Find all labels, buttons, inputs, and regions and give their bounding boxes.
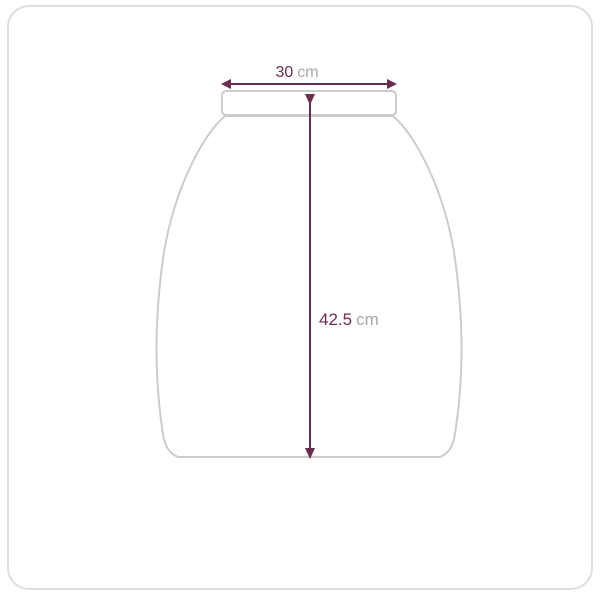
width-unit: cm — [297, 64, 318, 81]
width-measure-label: 30cm — [222, 65, 372, 81]
width-value: 30 — [275, 64, 293, 81]
width-arrowhead-right-icon — [387, 79, 397, 89]
size-diagram-card: 30cm 42.5cm — [7, 5, 593, 590]
height-value: 42.5 — [319, 310, 352, 329]
height-unit: cm — [356, 310, 379, 329]
height-measure-label: 42.5cm — [319, 311, 379, 328]
garment-diagram — [9, 7, 600, 607]
